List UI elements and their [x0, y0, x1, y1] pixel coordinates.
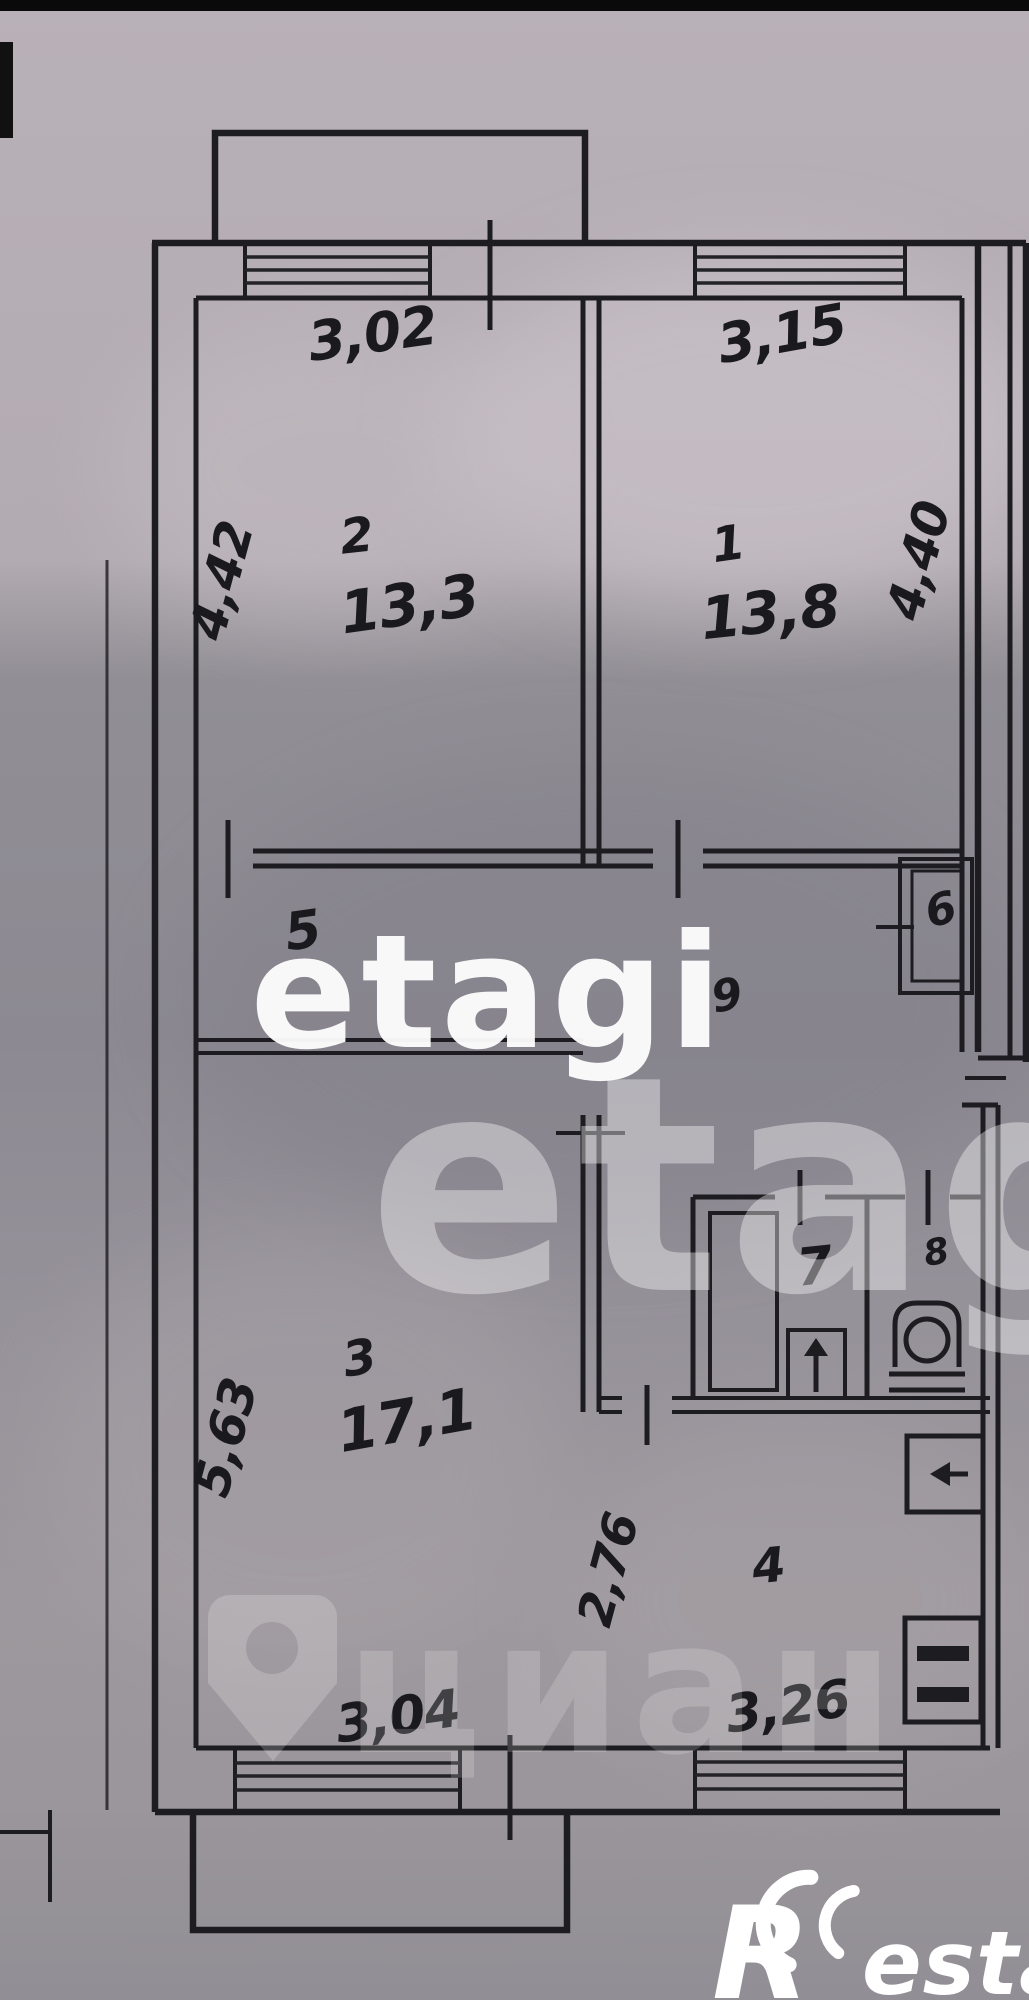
- watermark-etagi: etagi: [250, 901, 727, 1085]
- floor-plan-scan: 3,02 3,15 2 13,3 1 13,8 4,42 4,40 5 6 9 …: [0, 0, 1029, 2000]
- top-scan-bar: [0, 0, 1029, 11]
- restate-logo-text: estate: [862, 1912, 1029, 2000]
- area-room-1: 13,8: [697, 571, 842, 653]
- room-number-2: 2: [337, 507, 375, 566]
- watermark-cian-text: циан: [345, 1580, 904, 1796]
- floorplan-svg: 3,02 3,15 2 13,3 1 13,8 4,42 4,40 5 6 9 …: [0, 0, 1029, 2000]
